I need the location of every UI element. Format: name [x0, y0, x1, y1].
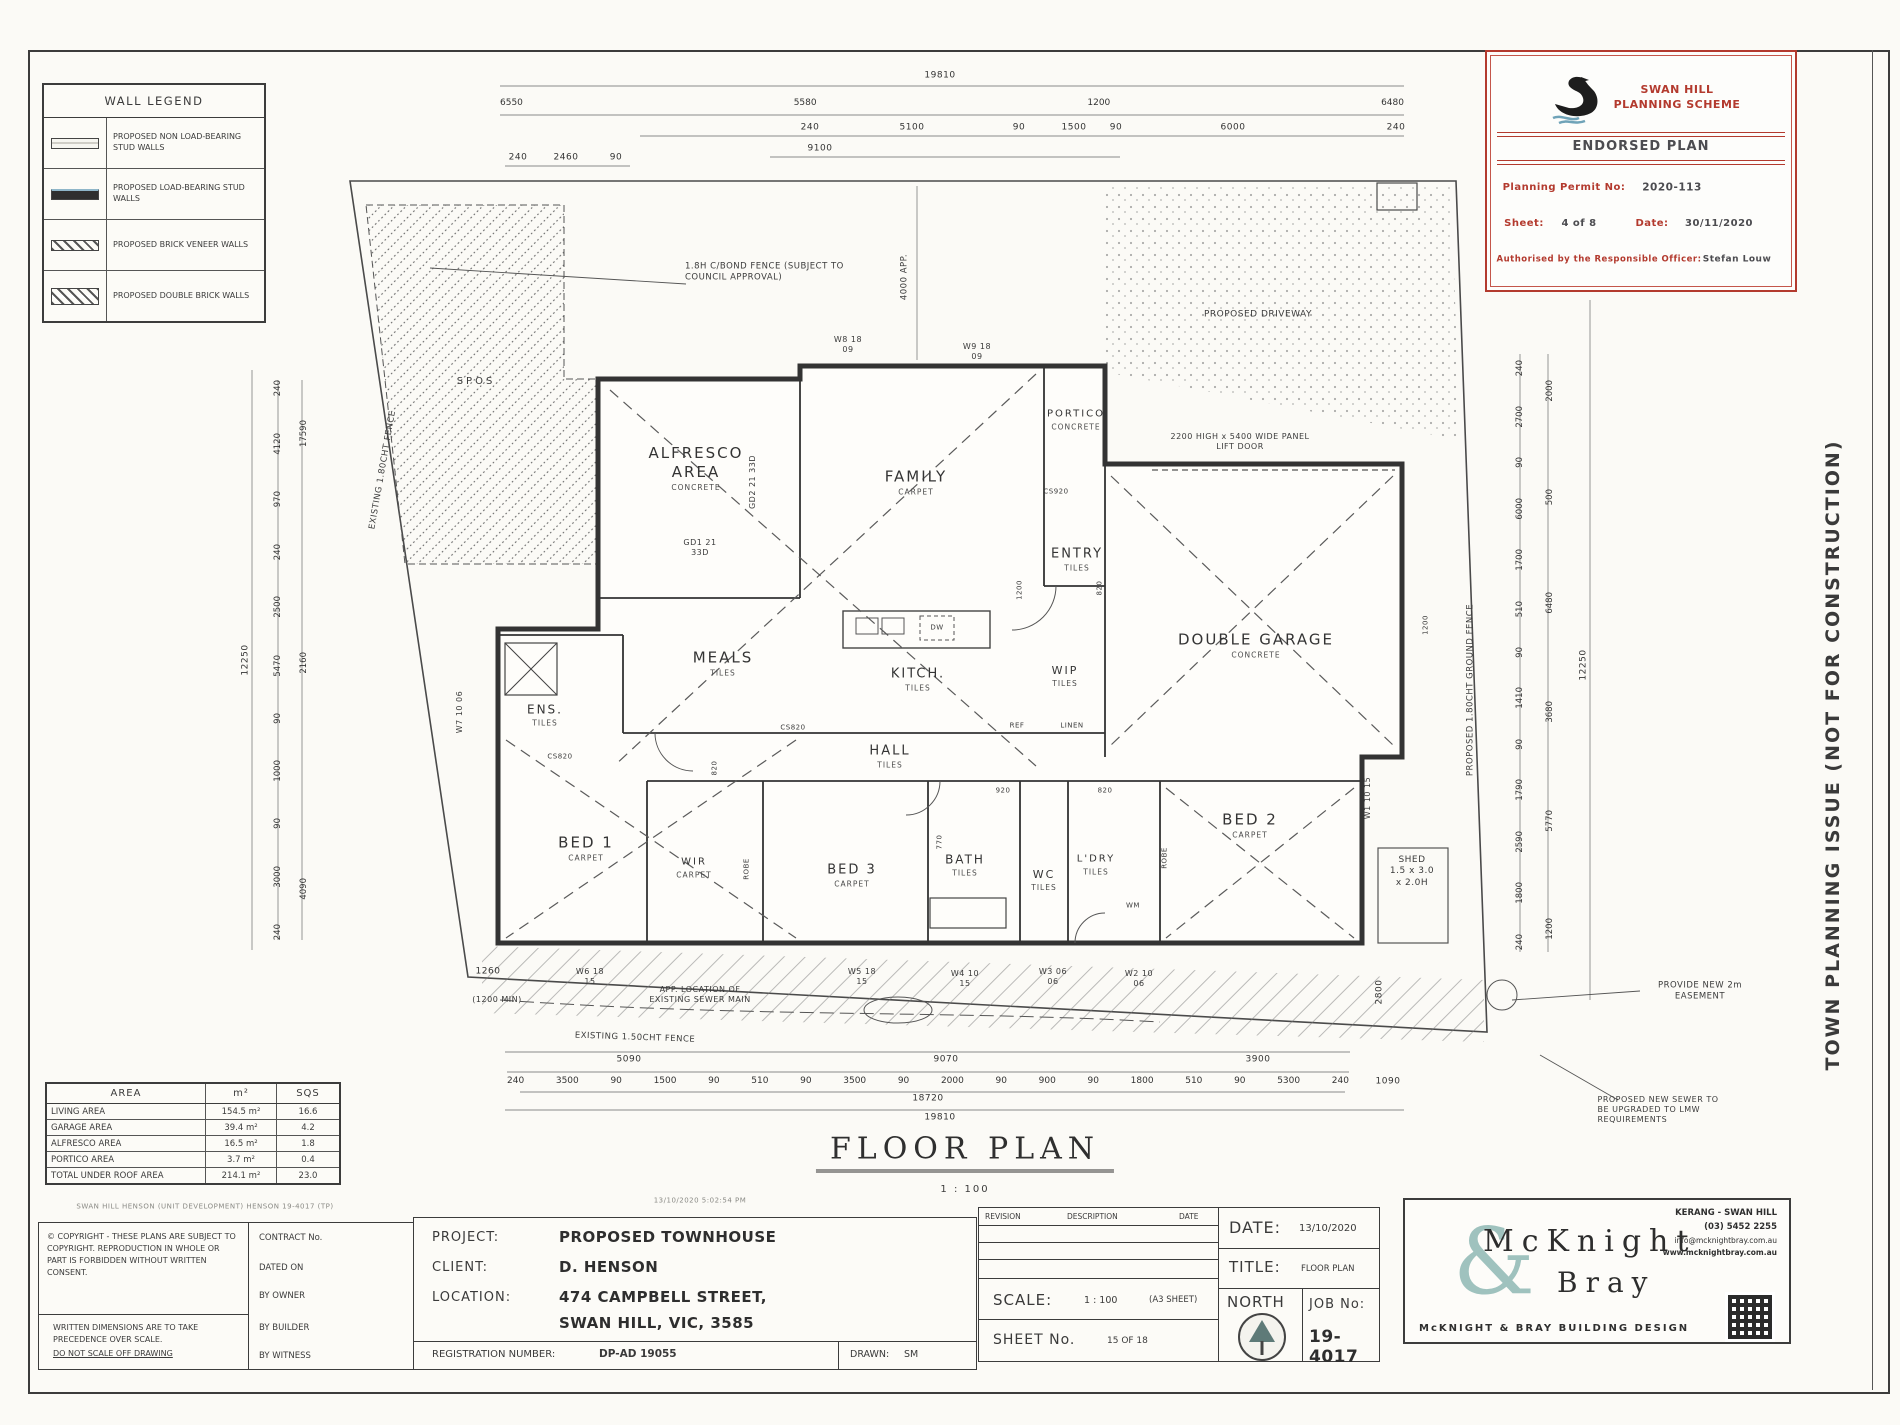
- shed-name: SHED: [1398, 855, 1425, 865]
- dim-label: 1200: [1087, 98, 1110, 108]
- brand-region: KERANG - SWAN HILL: [1675, 1208, 1777, 1218]
- room-name: BED 1: [558, 833, 614, 851]
- dim-label: 90: [1515, 739, 1525, 750]
- dim-label: 90: [273, 713, 283, 724]
- driveway-label: PROPOSED DRIVEWAY: [1204, 309, 1312, 320]
- room-finish: CARPET: [885, 487, 947, 496]
- door-tag-cs920: CS920: [1043, 488, 1068, 497]
- area-table: AREAm²SQS LIVING AREA154.5 m²16.6 GARAGE…: [45, 1082, 341, 1185]
- drawing-title: FLOOR PLAN: [816, 1132, 1114, 1173]
- dim-label: 154.5 m²: [206, 1104, 277, 1119]
- window-tag-w9: W9 18 09: [961, 342, 993, 362]
- room-name: L'DRY: [1077, 854, 1115, 865]
- room-finish: CARPET: [827, 880, 877, 889]
- brand-tagline: McKNIGHT & BRAY BUILDING DESIGN: [1419, 1323, 1689, 1334]
- double-brick-swatch: [44, 271, 107, 321]
- by-witness-label: BY WITNESS: [259, 1351, 311, 1361]
- wall-legend: WALL LEGEND PROPOSED NON LOAD-BEARING ST…: [42, 83, 266, 323]
- divider: [979, 1319, 1219, 1320]
- dim-1090: 1090: [1376, 1076, 1401, 1087]
- dim-2800: 2800: [1374, 980, 1385, 1005]
- dim-label: 2000: [941, 1076, 964, 1086]
- room-bath: BATH TILES: [945, 852, 985, 877]
- door-tag-gd2: GD2 21 33D: [748, 455, 758, 509]
- load-bearing-swatch: [44, 169, 107, 219]
- dim-label: 240: [509, 152, 528, 163]
- registration-value: DP-AD 19055: [599, 1348, 677, 1360]
- drawn-label: DRAWN:: [850, 1349, 889, 1360]
- room-name: DOUBLE GARAGE: [1178, 630, 1334, 648]
- title-box: TITLE: FLOOR PLAN: [1218, 1248, 1380, 1290]
- dim-col-left2: 1759021604090: [288, 420, 320, 900]
- room-name: WC: [1033, 868, 1056, 881]
- sewer-upgrade-note: PROPOSED NEW SEWER TO BE UPGRADED TO LMW…: [1598, 1095, 1723, 1125]
- divider: [39, 1314, 249, 1315]
- date-header: DATE: [1179, 1212, 1199, 1221]
- brand-phone: (03) 5452 2255: [1704, 1222, 1777, 1232]
- room-name: ENS.: [527, 702, 563, 716]
- stamp-sheet-value: 4 of 8: [1561, 218, 1596, 231]
- room-name: FAMILY: [885, 467, 947, 485]
- date-label: DATE:: [1229, 1218, 1281, 1237]
- dim-label: 3000: [273, 866, 283, 888]
- dim-label: 3.7 m²: [206, 1152, 277, 1167]
- job-no-label: JOB No:: [1309, 1297, 1365, 1312]
- dim-label: 90: [273, 818, 283, 829]
- window-tag-w8: W8 18 09: [832, 335, 864, 355]
- room-finish: CARPET: [558, 853, 614, 862]
- compass-stem: [1261, 1341, 1264, 1355]
- dim-row-bottom2: 2403500901500905109035009020009090090180…: [507, 1076, 1349, 1086]
- room-alfresco: ALFRESCO AREA CONCRETE: [641, 444, 751, 492]
- north-box: NORTH: [1218, 1288, 1304, 1362]
- dim-label: 17590: [299, 420, 309, 447]
- room-finish: CARPET: [1222, 830, 1278, 839]
- dim-label: 90: [610, 152, 622, 163]
- room-name: BATH: [945, 852, 985, 866]
- window-tag-w5: W5 18 15: [846, 967, 878, 987]
- room-finish: CARPET: [676, 870, 711, 879]
- stamp-auth-value: Stefan Louw: [1703, 254, 1772, 265]
- dim-label: 0.4: [277, 1152, 339, 1167]
- client-value: D. HENSON: [559, 1258, 658, 1276]
- dim-label: 90: [1013, 122, 1025, 133]
- dim-label: 1800: [1515, 882, 1525, 904]
- drawn-value: SM: [904, 1349, 918, 1360]
- room-bed1: BED 1 CARPET: [558, 833, 614, 862]
- dim-label: 39.4 m²: [206, 1120, 277, 1135]
- dim-label: 1500: [1062, 122, 1087, 133]
- signing-box: CONTRACT No. DATED ON BY OWNER BY BUILDE…: [248, 1222, 415, 1370]
- ref-label: REF: [1010, 722, 1025, 731]
- dim-1260: 1260: [476, 966, 501, 977]
- contract-label: CONTRACT No.: [259, 1233, 322, 1243]
- room-name: WIR: [681, 857, 707, 868]
- door-tag-cs820: CS820: [547, 753, 572, 762]
- dim-label: 4090: [299, 878, 309, 900]
- stamp-date-value: 30/11/2020: [1685, 218, 1753, 231]
- legend-label: PROPOSED DOUBLE BRICK WALLS: [107, 287, 264, 306]
- window-tag-w3: W3 06 06: [1037, 967, 1069, 987]
- dim-label: 2700: [1515, 406, 1525, 428]
- copyright-box: © COPYRIGHT - THESE PLANS ARE SUBJECT TO…: [38, 1222, 250, 1370]
- legend-row-brick-veneer: PROPOSED BRICK VENEER WALLS: [44, 220, 264, 271]
- dim-label: 510: [1515, 601, 1525, 617]
- dimensions-note: WRITTEN DIMENSIONS ARE TO TAKE PRECEDENC…: [53, 1322, 241, 1346]
- copyright-text: © COPYRIGHT - THESE PLANS ARE SUBJECT TO…: [47, 1231, 241, 1279]
- stamp-rule-bottom: [1497, 160, 1785, 165]
- room-bed3: BED 3 CARPET: [827, 863, 877, 890]
- dim-label: 6000: [1515, 498, 1525, 520]
- dim-label: 214.1 m²: [206, 1168, 277, 1183]
- room-hall: HALL TILES: [869, 744, 910, 771]
- floor-plan-sheet: WALL LEGEND PROPOSED NON LOAD-BEARING ST…: [0, 0, 1900, 1425]
- dim-label: 9070: [934, 1054, 959, 1065]
- dim-label: 2460: [554, 152, 579, 163]
- robe-label: ROBE: [1161, 847, 1170, 869]
- dim-label: 5770: [1545, 810, 1555, 832]
- dim-label: 90: [1515, 647, 1525, 658]
- dim-label: 1500: [654, 1076, 677, 1086]
- dim-1200: 1200: [1016, 580, 1025, 600]
- dim-label: PORTICO AREA: [47, 1152, 206, 1167]
- dim-label: 240: [1387, 122, 1406, 133]
- room-wip: WIP TILES: [1052, 664, 1079, 688]
- dim-label: 5580: [794, 98, 817, 108]
- dim-label: SQS: [277, 1084, 339, 1103]
- dim-9100: 9100: [808, 143, 833, 154]
- room-finish: TILES: [1031, 883, 1056, 892]
- dim-label: 3680: [1545, 701, 1555, 723]
- legend-row-non-load-bearing: PROPOSED NON LOAD-BEARING STUD WALLS: [44, 118, 264, 169]
- dim-label: 510: [1185, 1076, 1202, 1086]
- door-tag-820: 820: [711, 761, 720, 776]
- date-value: 13/10/2020: [1299, 1223, 1357, 1234]
- dim-label: m²: [206, 1084, 277, 1103]
- room-family: FAMILY CARPET: [885, 467, 947, 496]
- dim-label: 970: [273, 491, 283, 507]
- room-finish: TILES: [891, 684, 945, 693]
- stamp-auth-label: Authorised by the Responsible Officer:: [1497, 255, 1702, 266]
- location-value-line2: SWAN HILL, VIC, 3585: [559, 1314, 754, 1332]
- window-tag-w2: W2 10 06: [1123, 969, 1155, 989]
- dim-label: 1410: [1515, 687, 1525, 709]
- table-row: LIVING AREA154.5 m²16.6: [47, 1104, 339, 1120]
- divider: [838, 1341, 839, 1369]
- room-entry: ENTRY TILES: [1051, 547, 1103, 574]
- legend-row-load-bearing: PROPOSED LOAD-BEARING STUD WALLS: [44, 169, 264, 220]
- legend-label: PROPOSED LOAD-BEARING STUD WALLS: [107, 179, 264, 209]
- dim-label: 6550: [500, 98, 523, 108]
- door-tag-cs820: CS820: [780, 724, 805, 733]
- room-finish: CONCRETE: [1047, 422, 1105, 431]
- dim-label: 240: [1515, 360, 1525, 376]
- dim-label: 90: [1110, 122, 1122, 133]
- divider: [979, 1225, 1219, 1226]
- room-name: KITCH.: [891, 667, 945, 682]
- project-value: PROPOSED TOWNHOUSE: [559, 1228, 776, 1246]
- client-label: CLIENT:: [432, 1260, 488, 1275]
- dated-on-label: DATED ON: [259, 1263, 303, 1273]
- divider: [979, 1259, 1219, 1260]
- swan-logo-icon: [1545, 74, 1607, 126]
- dim-label: 6000: [1221, 122, 1246, 133]
- stamp-endorsed: ENDORSED PLAN: [1573, 139, 1710, 155]
- north-label: NORTH: [1227, 1293, 1285, 1311]
- proposed-fence-right-note: PROPOSED 1.80CHT GROUND FENCE: [1466, 604, 1477, 776]
- stamp-sheet-label: Sheet:: [1504, 218, 1544, 231]
- by-owner-label: BY OWNER: [259, 1291, 305, 1301]
- title-label: TITLE:: [1229, 1258, 1281, 1276]
- project-box: PROJECT: PROPOSED TOWNHOUSE CLIENT: D. H…: [413, 1217, 977, 1370]
- dim-col-right2: 20005006480368057701200: [1534, 380, 1566, 940]
- dim-label: 240: [273, 380, 283, 396]
- divider: [979, 1278, 1219, 1279]
- registration-label: REGISTRATION NUMBER:: [432, 1349, 555, 1360]
- stamp-scheme-line2: PLANNING SCHEME: [1614, 98, 1741, 112]
- scale-sheet-note: (A3 SHEET): [1149, 1295, 1197, 1305]
- legend-label: PROPOSED BRICK VENEER WALLS: [107, 236, 264, 255]
- compass-needle: [1249, 1320, 1275, 1342]
- dim-label: AREA: [47, 1084, 206, 1103]
- room-finish: TILES: [945, 868, 985, 877]
- revision-scale-box: REVISION DESCRIPTION DATE SCALE: 1 : 100…: [978, 1207, 1220, 1362]
- room-name: PORTICO: [1047, 409, 1105, 420]
- dim-overall-top: 19810: [924, 70, 955, 81]
- room-kitchen: KITCH. TILES: [891, 667, 945, 694]
- door-tag-820: 820: [1096, 581, 1105, 596]
- room-finish: CONCRETE: [1178, 650, 1334, 659]
- no-scale-note: DO NOT SCALE OFF DRAWING: [53, 1349, 173, 1358]
- room-portico: PORTICO CONCRETE: [1047, 409, 1105, 432]
- room-name: HALL: [869, 744, 910, 759]
- door-tag-gd1: GD1 21 33D: [679, 538, 721, 558]
- dim-label: 1800: [1131, 1076, 1154, 1086]
- dim-label: 4120: [273, 433, 283, 455]
- dim-label: TOTAL UNDER ROOF AREA: [47, 1168, 206, 1183]
- town-planning-issue-note: TOWN PLANNING ISSUE (NOT FOR CONSTRUCTIO…: [1822, 439, 1844, 1070]
- date-box: DATE: 13/10/2020: [1218, 1207, 1380, 1250]
- dim-label: 5100: [900, 122, 925, 133]
- dim-label: GARAGE AREA: [47, 1120, 206, 1135]
- dim-label: ALFRESCO AREA: [47, 1136, 206, 1151]
- dim-label: 90: [898, 1076, 909, 1086]
- area-table-header: AREAm²SQS: [47, 1084, 339, 1104]
- room-name: WIP: [1052, 664, 1079, 677]
- dim-label: 5300: [1277, 1076, 1300, 1086]
- file-reference: SWAN HILL HENSON (UNIT DEVELOPMENT) HENS…: [76, 1203, 333, 1212]
- dim-label: 2000: [1545, 380, 1555, 402]
- dim-label: 1200: [1545, 918, 1555, 940]
- location-label: LOCATION:: [432, 1290, 511, 1305]
- table-row: GARAGE AREA39.4 m²4.2: [47, 1120, 339, 1136]
- shed-label: SHED 1.5 x 3.0 x 2.0H: [1390, 855, 1434, 889]
- job-no-value: 19-4017: [1309, 1327, 1379, 1367]
- dim-label: 90: [800, 1076, 811, 1086]
- dim-label: 240: [1515, 934, 1525, 950]
- room-meals: MEALS TILES: [693, 648, 754, 677]
- dim-overall-bottom: 19810: [924, 1112, 955, 1123]
- dim-label: 23.0: [277, 1168, 339, 1183]
- job-box: JOB No: 19-4017: [1302, 1288, 1380, 1362]
- dim-label: 1000: [273, 760, 283, 782]
- door-tag-820: 820: [1098, 787, 1113, 796]
- dim-label: 90: [996, 1076, 1007, 1086]
- dim-label: 90: [708, 1076, 719, 1086]
- room-ldry: L'DRY TILES: [1077, 854, 1115, 877]
- room-name: BED 2: [1222, 810, 1278, 828]
- shed-size: 1.5 x 3.0: [1390, 866, 1434, 876]
- window-tag-w6: W6 18 15: [574, 967, 606, 987]
- dim-label: 500: [1545, 489, 1555, 505]
- room-finish: TILES: [693, 668, 754, 677]
- table-row: ALFRESCO AREA16.5 m²1.8: [47, 1136, 339, 1152]
- dim-label: 240: [273, 924, 283, 940]
- room-finish: TILES: [1077, 867, 1115, 876]
- stamp-rule-top: [1497, 132, 1785, 137]
- print-timestamp: 13/10/2020 5:02:54 PM: [654, 1197, 747, 1206]
- dim-label: 2590: [1515, 831, 1525, 853]
- dim-label: 5090: [617, 1054, 642, 1065]
- brand-email: info@mcknightbray.com.au: [1674, 1236, 1777, 1245]
- dishwasher-label: DW: [930, 624, 943, 633]
- legend-label: PROPOSED NON LOAD-BEARING STUD WALLS: [107, 128, 264, 158]
- dim-label: 510: [751, 1076, 768, 1086]
- dim-1200-min: (1200 MIN): [472, 995, 521, 1005]
- dim-label: 1.8: [277, 1136, 339, 1151]
- room-finish: CONCRETE: [641, 483, 751, 492]
- brand-name-bottom: Bray: [1557, 1266, 1655, 1299]
- room-finish: TILES: [1051, 564, 1103, 573]
- window-tag-w1: W1 10 15: [1363, 777, 1373, 819]
- dim-label: 5470: [273, 655, 283, 677]
- designer-logo-box: & McKnight Bray McKNIGHT & BRAY BUILDING…: [1403, 1198, 1791, 1344]
- north-compass-icon: [1238, 1313, 1286, 1361]
- room-name: BED 3: [827, 863, 877, 878]
- title-value: FLOOR PLAN: [1301, 1264, 1355, 1274]
- dim-label: 2500: [273, 596, 283, 618]
- dim-label: 1790: [1515, 779, 1525, 801]
- dim-label: 6480: [1381, 98, 1404, 108]
- approx-4000-label: 4000 APP.: [900, 254, 911, 300]
- legend-row-double-brick: PROPOSED DOUBLE BRICK WALLS: [44, 271, 264, 321]
- linen-label: LINEN: [1060, 722, 1083, 731]
- room-finish: TILES: [1052, 679, 1079, 688]
- dim-label: 6480: [1545, 592, 1555, 614]
- dim-left-12250: 12250: [240, 644, 251, 675]
- table-row: TOTAL UNDER ROOF AREA214.1 m²23.0: [47, 1168, 339, 1183]
- dim-label: 1700: [1515, 549, 1525, 571]
- project-label: PROJECT:: [432, 1230, 499, 1245]
- spos-label: SPOS: [457, 376, 496, 389]
- stamp-permit-label: Planning Permit No:: [1503, 182, 1626, 195]
- sheet-no-label: SHEET No.: [993, 1332, 1075, 1348]
- drawing-scale: 1 : 100: [940, 1184, 989, 1197]
- washing-machine-label: WM: [1126, 902, 1140, 911]
- dim-1200: 1200: [1422, 615, 1431, 635]
- divider: [414, 1341, 976, 1342]
- dim-label: 16.6: [277, 1104, 339, 1119]
- room-wir: WIR CARPET: [676, 857, 711, 880]
- scale-value: 1 : 100: [1084, 1295, 1117, 1306]
- non-load-bearing-swatch: [44, 118, 107, 168]
- room-finish: TILES: [869, 761, 910, 770]
- easement-note: PROVIDE NEW 2m EASEMENT: [1635, 980, 1765, 1001]
- window-tag-w4: W4 10 15: [949, 969, 981, 989]
- by-builder-label: BY BUILDER: [259, 1323, 309, 1333]
- dim-label: 90: [1088, 1076, 1099, 1086]
- door-tag-920: 920: [996, 787, 1011, 796]
- dim-label: LIVING AREA: [47, 1104, 206, 1119]
- room-finish: TILES: [527, 718, 563, 727]
- room-garage: DOUBLE GARAGE CONCRETE: [1178, 630, 1334, 659]
- robe-label: ROBE: [743, 858, 752, 880]
- wall-legend-title: WALL LEGEND: [44, 85, 264, 118]
- window-tag-w7: W7 10 06: [455, 691, 465, 733]
- endorsed-plan-stamp: SWAN HILL PLANNING SCHEME ENDORSED PLAN …: [1485, 50, 1797, 292]
- stamp-scheme-line1: SWAN HILL: [1641, 83, 1714, 97]
- dim-right-12250: 12250: [1578, 649, 1589, 680]
- brand-website: www.mcknightbray.com.au: [1663, 1248, 1777, 1257]
- sewer-main-note: APP. LOCATION OF EXISTING SEWER MAIN: [640, 985, 760, 1005]
- dim-label: 240: [507, 1076, 524, 1086]
- dim-18720: 18720: [912, 1093, 943, 1104]
- qr-code: [1725, 1292, 1775, 1342]
- dim-label: 240: [1332, 1076, 1349, 1086]
- stamp-permit-value: 2020-113: [1642, 181, 1702, 194]
- room-name: ENTRY: [1051, 547, 1103, 562]
- dim-label: 240: [801, 122, 820, 133]
- dim-row-top2: 6550558012006480: [500, 98, 1404, 108]
- dim-label: 16.5 m²: [206, 1136, 277, 1151]
- door-tag-770: 770: [936, 835, 945, 850]
- stamp-date-label: Date:: [1635, 218, 1668, 231]
- dim-label: 3500: [843, 1076, 866, 1086]
- dim-label: 90: [610, 1076, 621, 1086]
- dim-label: 3900: [1246, 1054, 1271, 1065]
- panel-door-note: 2200 HIGH x 5400 WIDE PANEL LIFT DOOR: [1160, 432, 1320, 452]
- shed-height: x 2.0H: [1396, 878, 1428, 888]
- description-header: DESCRIPTION: [1067, 1212, 1118, 1221]
- room-name: ALFRESCO AREA: [649, 444, 744, 481]
- revision-header: REVISION: [985, 1212, 1021, 1221]
- room-ens: ENS. TILES: [527, 702, 563, 727]
- location-value-line1: 474 CAMPBELL STREET,: [559, 1288, 767, 1306]
- dim-label: 90: [1234, 1076, 1245, 1086]
- brick-veneer-swatch: [44, 220, 107, 270]
- room-bed2: BED 2 CARPET: [1222, 810, 1278, 839]
- dim-label: 4.2: [277, 1120, 339, 1135]
- dim-label: 90: [1515, 457, 1525, 468]
- dim-label: 3500: [556, 1076, 579, 1086]
- table-row: PORTICO AREA3.7 m²0.4: [47, 1152, 339, 1168]
- fence-note: 1.8H C/BOND FENCE (SUBJECT TO COUNCIL AP…: [685, 261, 845, 282]
- room-name: MEALS: [693, 648, 754, 666]
- room-wc: WC TILES: [1031, 868, 1056, 892]
- dim-label: 2160: [299, 652, 309, 674]
- dim-label: 240: [273, 544, 283, 560]
- dim-label: 900: [1039, 1076, 1056, 1086]
- dim-col-right1: 2402700906000170051090141090179025901800…: [1504, 360, 1536, 950]
- divider: [979, 1242, 1219, 1243]
- sheet-no-value: 15 OF 18: [1107, 1336, 1148, 1346]
- scale-label: SCALE:: [993, 1291, 1052, 1309]
